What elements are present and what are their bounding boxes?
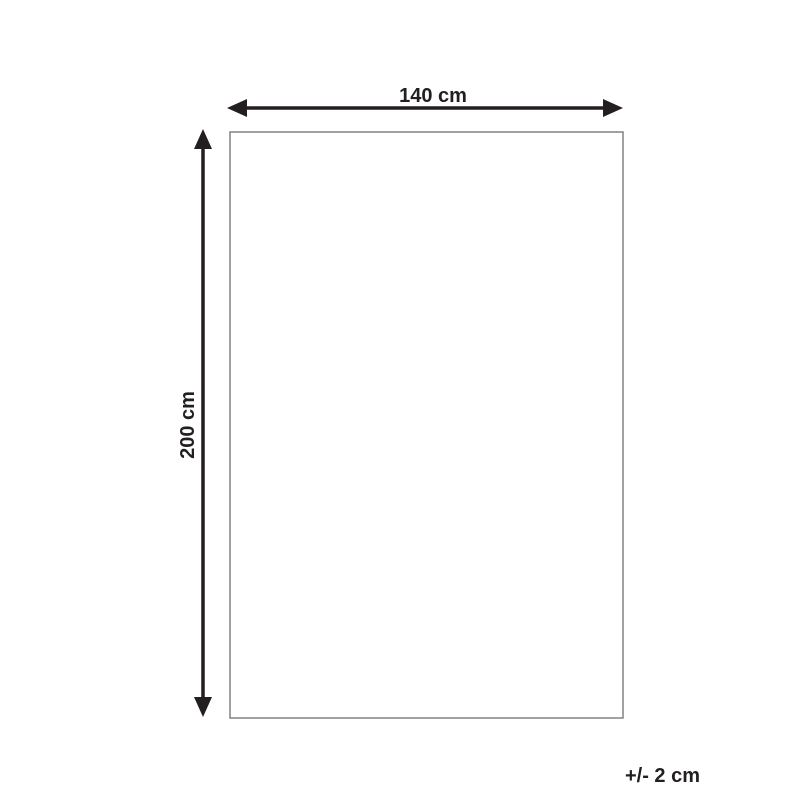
height-arrow-top-head-icon: [194, 129, 212, 149]
tolerance-label: +/- 2 cm: [625, 766, 700, 786]
height-dimension-label: 200 cm: [178, 391, 198, 459]
product-outline-rectangle: [230, 132, 623, 718]
diagram-graphics: [0, 0, 800, 800]
dimension-diagram: 140 cm 200 cm +/- 2 cm: [0, 0, 800, 800]
width-dimension-label: 140 cm: [228, 86, 638, 106]
height-arrow-bottom-head-icon: [194, 697, 212, 717]
